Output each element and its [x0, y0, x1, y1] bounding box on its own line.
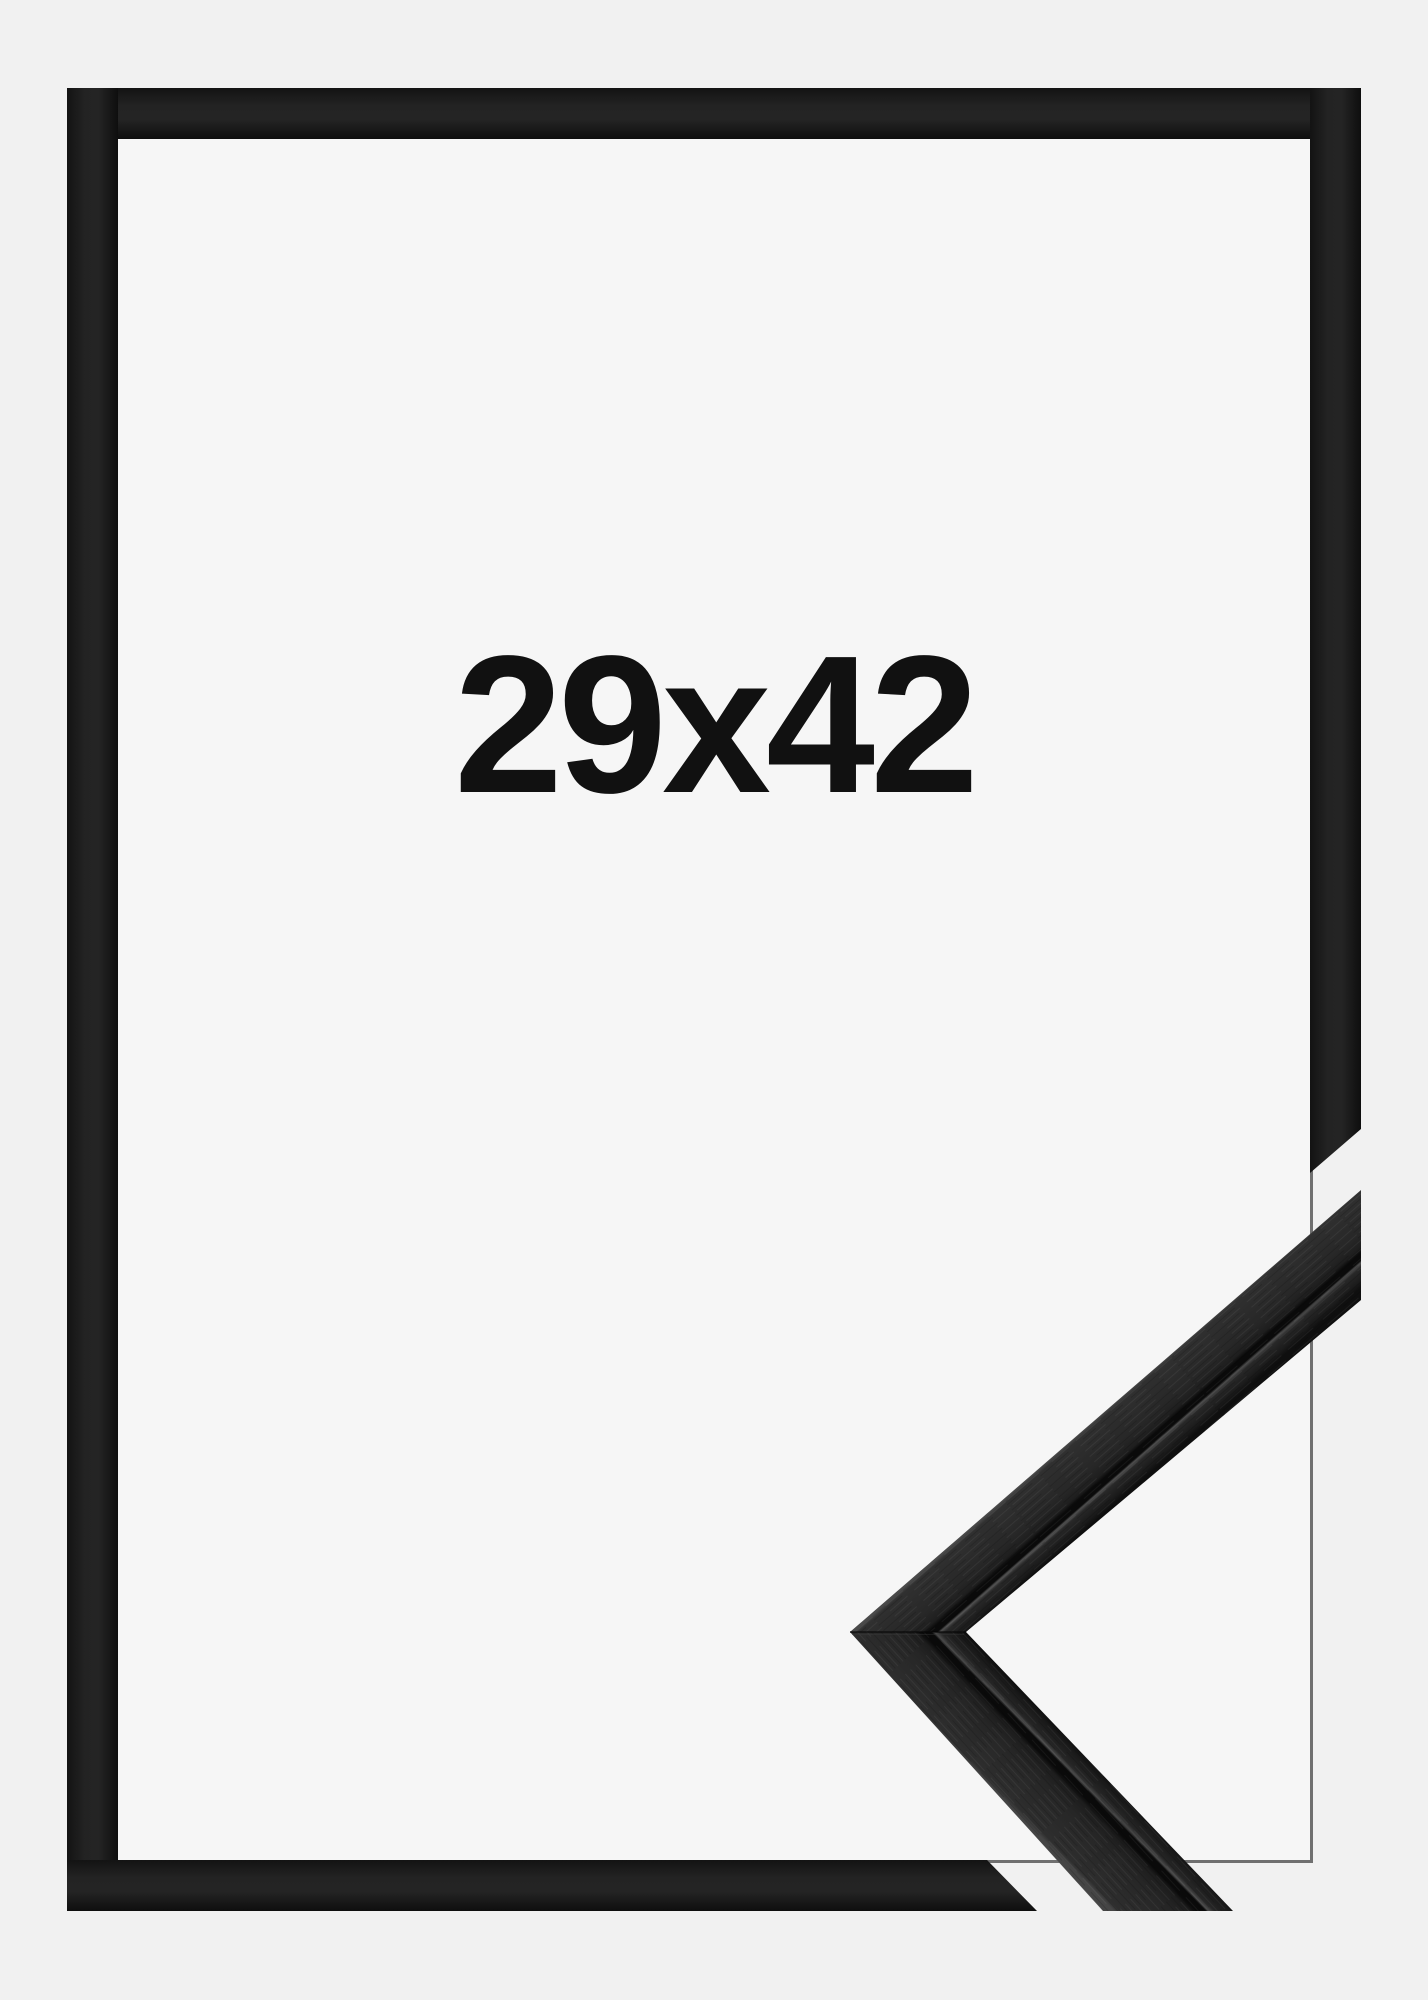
frame-profile-closeup [0, 0, 1428, 2000]
moulding-lower-arm [850, 1632, 1233, 1911]
moulding-upper-arm [850, 1190, 1361, 1632]
product-image: 29x42 [0, 0, 1428, 2000]
